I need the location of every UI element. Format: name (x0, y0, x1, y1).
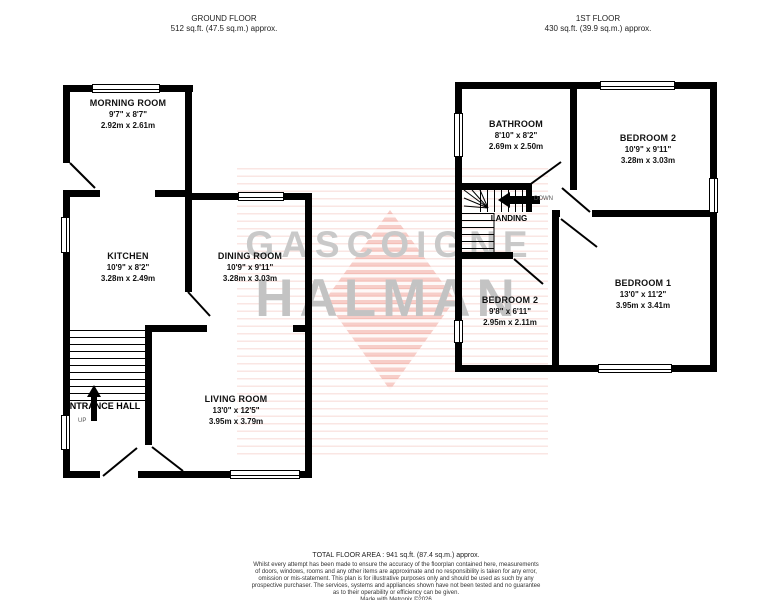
door-swing (528, 162, 561, 186)
disclaimer-line: Whilst every attempt has been made to en… (252, 562, 541, 569)
room-name: MORNING ROOM (90, 98, 166, 109)
bathroom-label: BATHROOM 8'10" x 8'2" 2.69m x 2.50m (489, 119, 543, 152)
room-dim-imperial: 8'10" x 8'2" (489, 130, 543, 141)
dining-room-label: DINING ROOM 10'9" x 9'11" 3.28m x 3.03m (218, 251, 282, 284)
room-dim-metric: 3.28m x 3.03m (218, 273, 282, 284)
floorplan-page: GASCOIGNE HALMAN GROUND FLOOR 512 sq.ft.… (0, 0, 782, 600)
door-swing (514, 259, 543, 284)
ground-floor-area: 512 sq.ft. (47.5 sq.m.) approx. (171, 24, 278, 34)
room-dim-metric: 3.28m x 2.49m (101, 273, 155, 284)
room-dim-imperial: 10'9" x 8'2" (101, 262, 155, 273)
down-arrow-icon (498, 192, 510, 208)
down-label: DOWN (534, 196, 553, 202)
room-name: BEDROOM 2 (482, 295, 538, 306)
room-name: LIVING ROOM (205, 394, 268, 405)
room-name: DINING ROOM (218, 251, 282, 262)
room-name: BEDROOM 1 (615, 278, 671, 289)
stair-winder (472, 190, 488, 208)
room-name: BATHROOM (489, 119, 543, 130)
up-label: UP (78, 418, 86, 424)
bedroom-2-front-label: BEDROOM 2 10'9" x 9'11" 3.28m x 3.03m (620, 133, 676, 166)
disclaimer-line: prospective purchaser. The services, sys… (252, 583, 541, 590)
room-dim-metric: 2.69m x 2.50m (489, 141, 543, 152)
disclaimer-line: as to their operability or efficiency ca… (252, 590, 541, 597)
morning-room-label: MORNING ROOM 9'7" x 8'7" 2.92m x 2.61m (90, 98, 166, 131)
disclaimer-line: of doors, windows, rooms and any other i… (252, 569, 541, 576)
ground-floor-overlay (57, 78, 319, 490)
room-dim-metric: 3.95m x 3.79m (205, 416, 268, 427)
ground-floor-plan: MORNING ROOM 9'7" x 8'7" 2.92m x 2.61m K… (57, 78, 319, 490)
room-dim-imperial: 9'7" x 8'7" (90, 109, 166, 120)
living-room-label: LIVING ROOM 13'0" x 12'5" 3.95m x 3.79m (205, 394, 268, 427)
door-swing (561, 219, 597, 247)
total-floor-area: TOTAL FLOOR AREA : 941 sq.ft. (87.4 sq.m… (312, 552, 479, 559)
room-name: KITCHEN (101, 251, 155, 262)
first-floor-title: 1ST FLOOR (545, 14, 652, 24)
door-swing (103, 448, 137, 476)
room-dim-metric: 3.95m x 3.41m (615, 300, 671, 311)
disclaimer-line: omission or mis-statement. This plan is … (252, 576, 541, 583)
entrance-hall-label: ENTRANCE HALL (64, 401, 141, 411)
room-dim-imperial: 10'9" x 9'11" (620, 144, 676, 155)
room-dim-metric: 2.95m x 2.11m (482, 317, 538, 328)
room-dim-imperial: 10'9" x 9'11" (218, 262, 282, 273)
room-dim-imperial: 9'8" x 6'11" (482, 306, 538, 317)
ground-floor-title: GROUND FLOOR (171, 14, 278, 24)
up-arrow-icon (87, 385, 101, 397)
room-dim-imperial: 13'0" x 11'2" (615, 289, 671, 300)
first-floor-area: 430 sq.ft. (39.9 sq.m.) approx. (545, 24, 652, 34)
disclaimer: Whilst every attempt has been made to en… (252, 562, 541, 600)
first-floor-header: 1ST FLOOR 430 sq.ft. (39.9 sq.m.) approx… (545, 14, 652, 34)
door-swing (188, 292, 210, 316)
room-dim-imperial: 13'0" x 12'5" (205, 405, 268, 416)
bedroom-2-rear-label: BEDROOM 2 9'8" x 6'11" 2.95m x 2.11m (482, 295, 538, 328)
room-dim-metric: 3.28m x 3.03m (620, 155, 676, 166)
door-swing (70, 163, 95, 188)
kitchen-label: KITCHEN 10'9" x 8'2" 3.28m x 2.49m (101, 251, 155, 284)
ground-floor-header: GROUND FLOOR 512 sq.ft. (47.5 sq.m.) app… (171, 14, 278, 34)
room-name: BEDROOM 2 (620, 133, 676, 144)
landing-label: LANDING (491, 214, 527, 223)
door-swing (562, 188, 590, 212)
door-swing (152, 447, 183, 471)
room-dim-metric: 2.92m x 2.61m (90, 120, 166, 131)
bedroom-1-label: BEDROOM 1 13'0" x 11'2" 3.95m x 3.41m (615, 278, 671, 311)
first-floor-plan: BATHROOM 8'10" x 8'2" 2.69m x 2.50m BEDR… (450, 76, 722, 378)
